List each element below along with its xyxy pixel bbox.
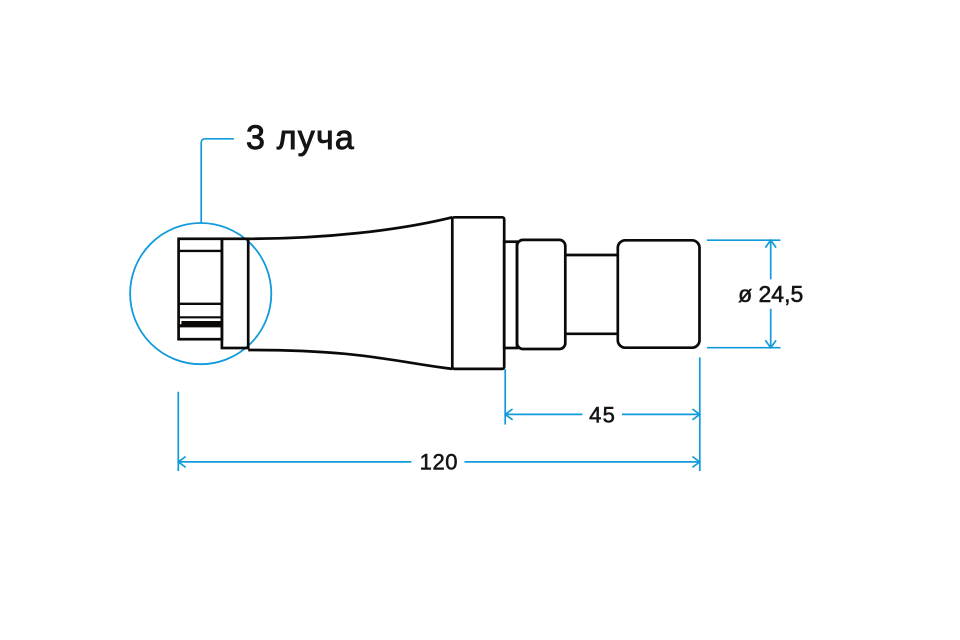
- svg-text:45: 45: [589, 403, 616, 428]
- svg-text:ø 24,5: ø 24,5: [738, 281, 803, 307]
- svg-text:3 луча: 3 луча: [246, 119, 355, 157]
- svg-text:120: 120: [420, 450, 459, 475]
